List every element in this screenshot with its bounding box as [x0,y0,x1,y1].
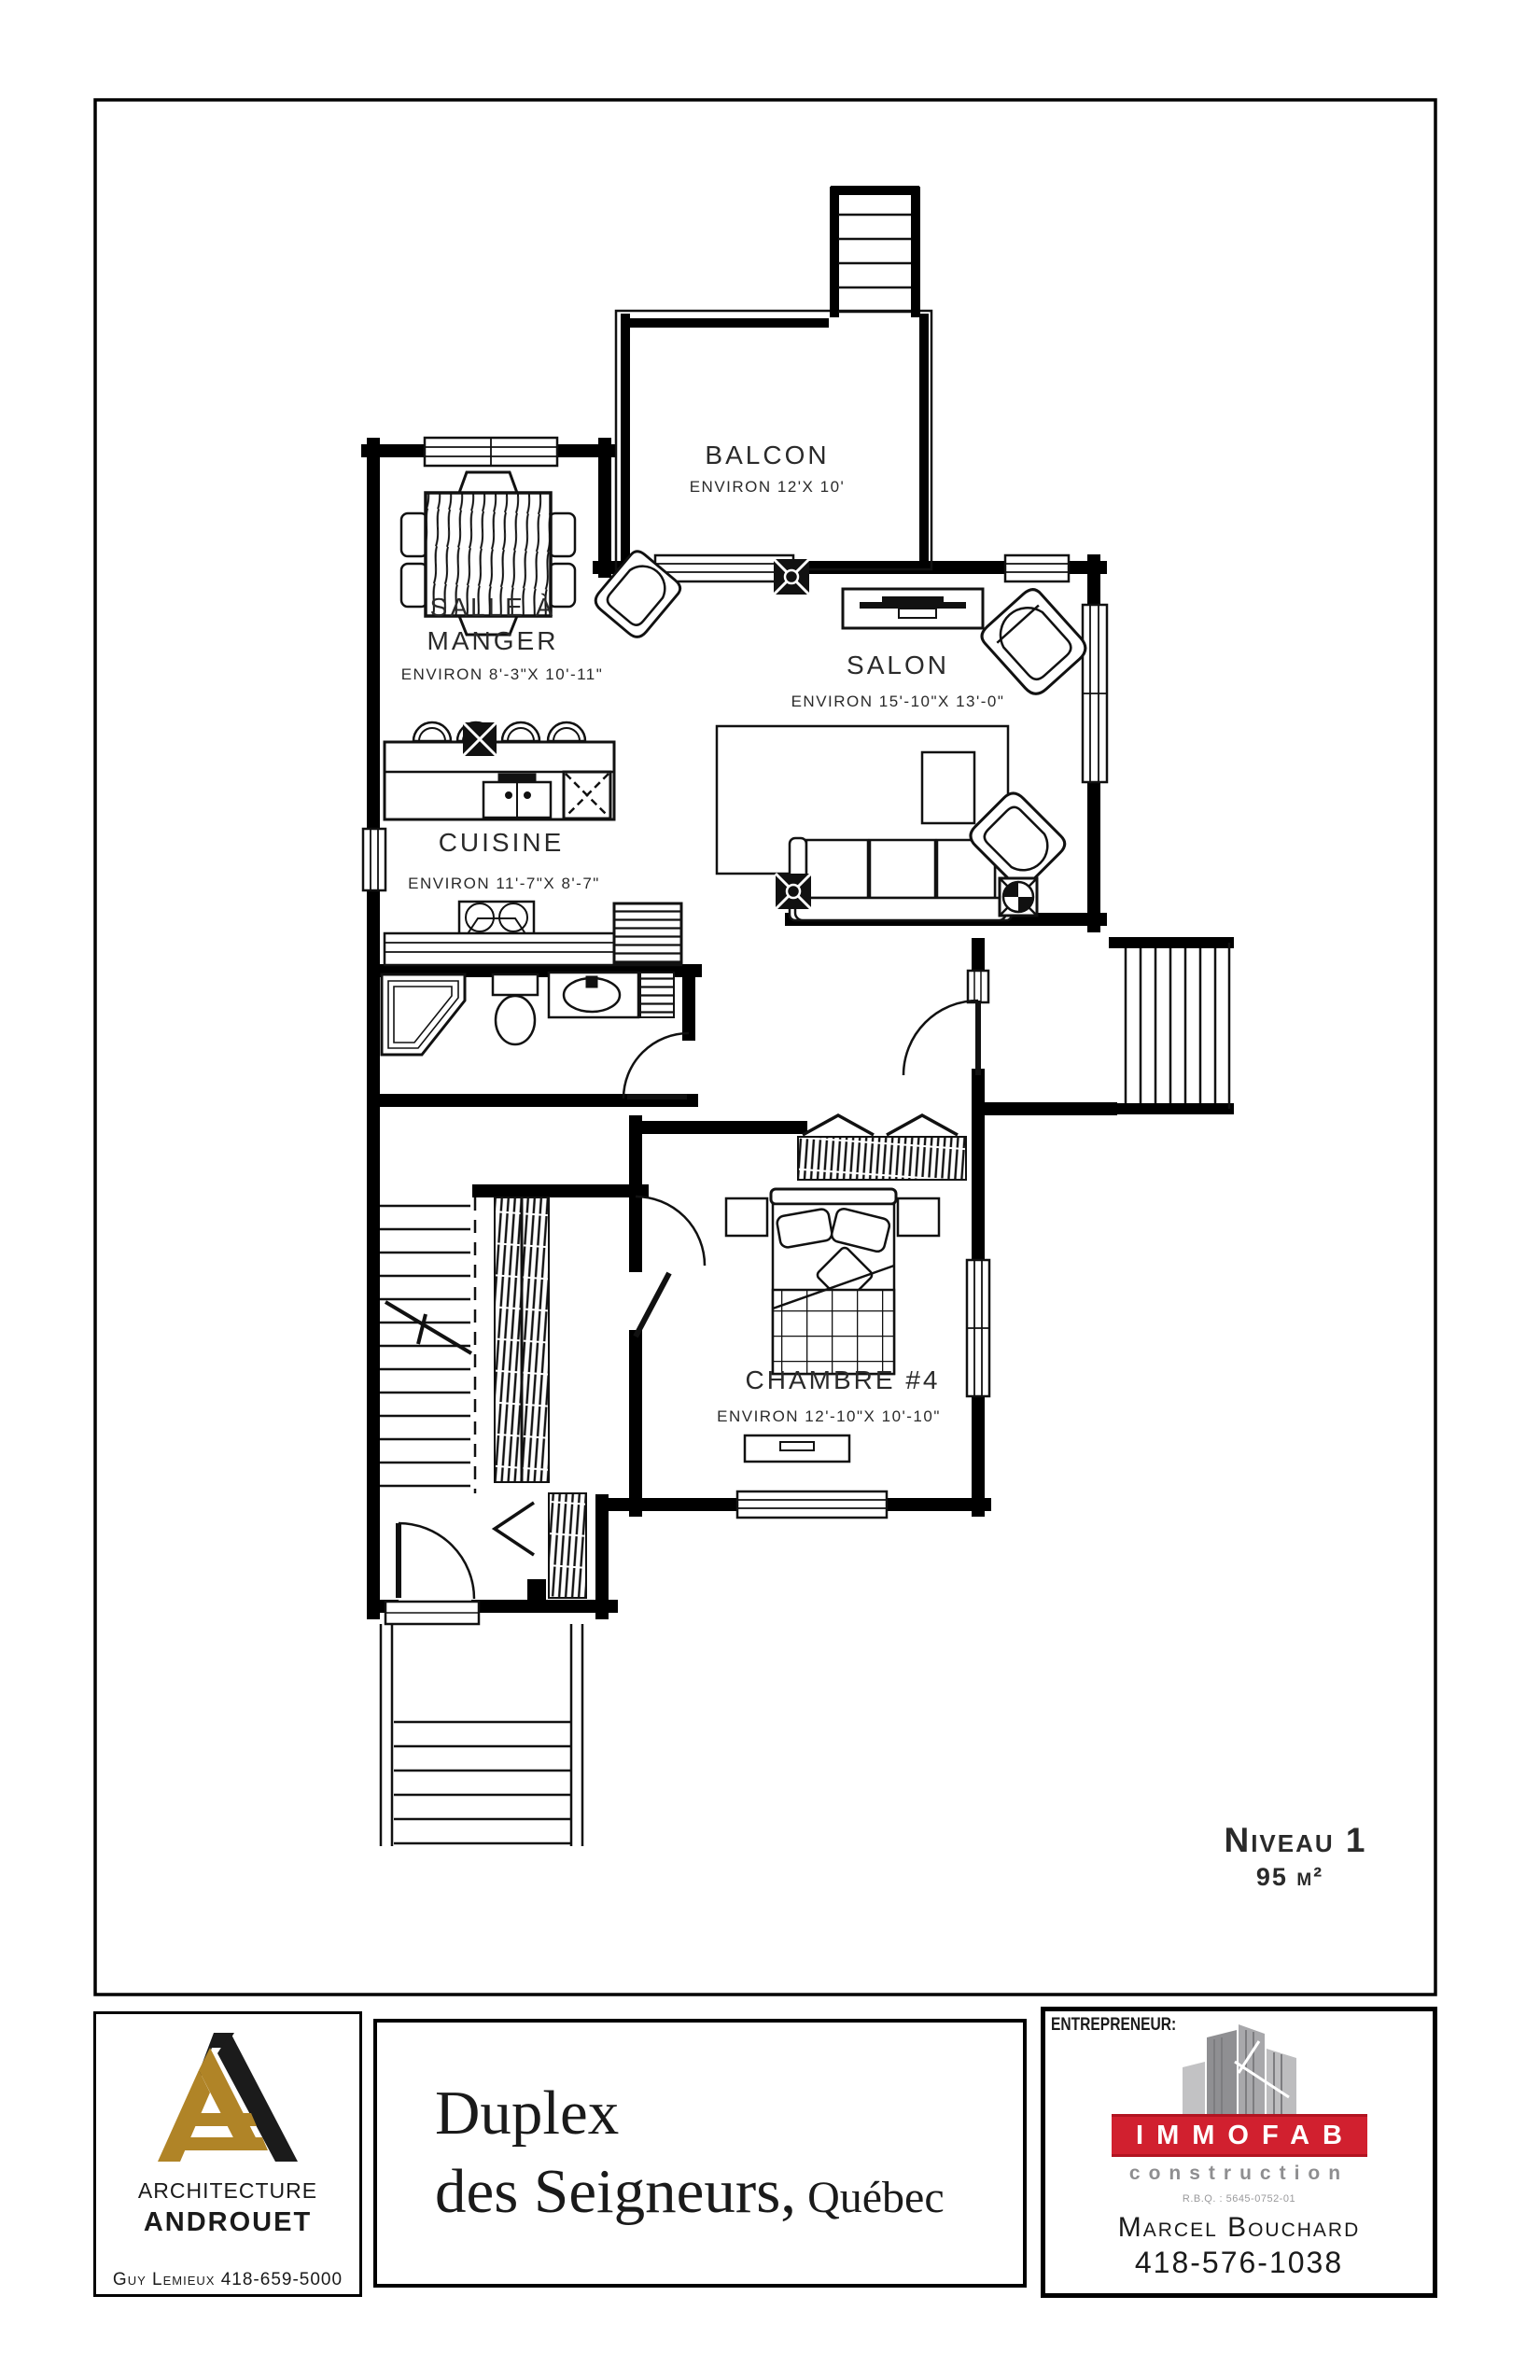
window-dining-top [425,438,557,466]
project-title-main: des Seigneurs, [435,2157,796,2226]
dims-cuisine: ENVIRON 11'-7"X 8'-7" [408,875,600,892]
area-label: 95 m² [1256,1863,1323,1891]
dims-salle-a-manger: ENVIRON 8'-3"X 10'-11" [401,665,604,683]
architect-title-block: ARCHITECTURE ANDROUET Guy Lemieux 418-65… [93,2011,362,2297]
contractor-phone: 418-576-1038 [1135,2246,1343,2280]
label-salle-a-manger-1: SALLE À [430,593,556,622]
vanity-sink [549,973,638,1017]
label-salle-a-manger-2: MANGER [427,626,559,655]
bathroom-door [623,1033,689,1099]
interior-stairs [380,1197,475,1493]
vestibule-closet [495,1493,586,1600]
entry-door [903,1001,978,1075]
rbq-number: R.B.Q. : 5645-0752-01 [1183,2193,1295,2205]
bathroom-fixtures [382,973,674,1055]
nightstand-right [898,1198,939,1236]
armchair-top [977,585,1090,699]
plant-icon [776,874,811,909]
project-title-block: Duplex des Seigneurs, Québec [373,2019,1027,2288]
kitchen-island [385,722,614,819]
label-cuisine: CUISINE [439,828,565,857]
window-porch-sidelight [968,971,988,1002]
salon-furniture [592,548,1091,920]
island-range [564,772,610,819]
architect-name-line2: ANDROUET [144,2207,312,2238]
kitchen-counter [385,902,681,965]
window-salon-top-right [1005,555,1069,581]
bedroom-door [636,1197,705,1337]
dims-chambre4: ENVIRON 12'-10"X 10'-10" [717,1407,941,1425]
plant-icon [463,722,497,756]
dresser [745,1435,849,1462]
contractor-title-block: ENTREPRENEUR: IMMOFAB construction R.B.Q… [1041,2007,1437,2298]
label-chambre4: CHAMBRE #4 [746,1365,941,1394]
vestibule-door [385,1523,479,1624]
corner-shower [382,974,465,1055]
label-balcon: BALCON [705,441,829,469]
immofab-logo-banner: IMMOFAB [1112,2114,1367,2157]
nightstand-left [726,1198,767,1236]
sheet-page: BALCON ENVIRON 12'X 10' SALLE À MANGER E… [0,0,1540,2380]
project-title-line2: des Seigneurs, Québec [435,2153,1023,2232]
architect-name-line1: ARCHITECTURE [138,2178,317,2204]
toilet [493,974,538,1044]
label-salon: SALON [847,651,949,679]
sheet-border [95,100,1435,1995]
window-bedroom-right [967,1260,989,1396]
plant-icon [774,559,809,595]
coffee-table [922,752,974,823]
architect-contact: Guy Lemieux 418-659-5000 [113,2270,343,2290]
plant-pot-icon [1000,878,1037,916]
tv-console [843,589,983,628]
window-salon-top-left [655,555,793,581]
balcony-stairs [831,187,919,317]
immofab-construction-label: construction [1129,2163,1349,2185]
entrepreneur-label: ENTREPRENEUR: [1051,2015,1176,2036]
project-title-line1: Duplex [435,2075,1023,2153]
immofab-buildings-icon [1179,2024,1300,2114]
window-salon-right [1083,605,1107,782]
project-title-city: Québec [796,2173,945,2222]
front-entry-stairs [1109,943,1234,1109]
deck-stairs [381,1624,582,1846]
dims-salon: ENVIRON 15'-10"X 13'-0" [791,693,1005,710]
dims-balcon: ENVIRON 12'X 10' [690,478,846,496]
level-label: Niveau 1 [1224,1821,1366,1859]
window-bedroom-bottom [737,1491,887,1518]
architecture-androuet-logo-icon [120,2023,335,2171]
window-left-wall [363,829,385,890]
contractor-name: Marcel Bouchard [1118,2212,1361,2244]
bathroom-counter-hatch [640,973,674,1017]
bedroom-closet [798,1115,966,1180]
bed [771,1189,896,1374]
stair-closet [495,1197,549,1482]
refrigerator [614,903,681,963]
